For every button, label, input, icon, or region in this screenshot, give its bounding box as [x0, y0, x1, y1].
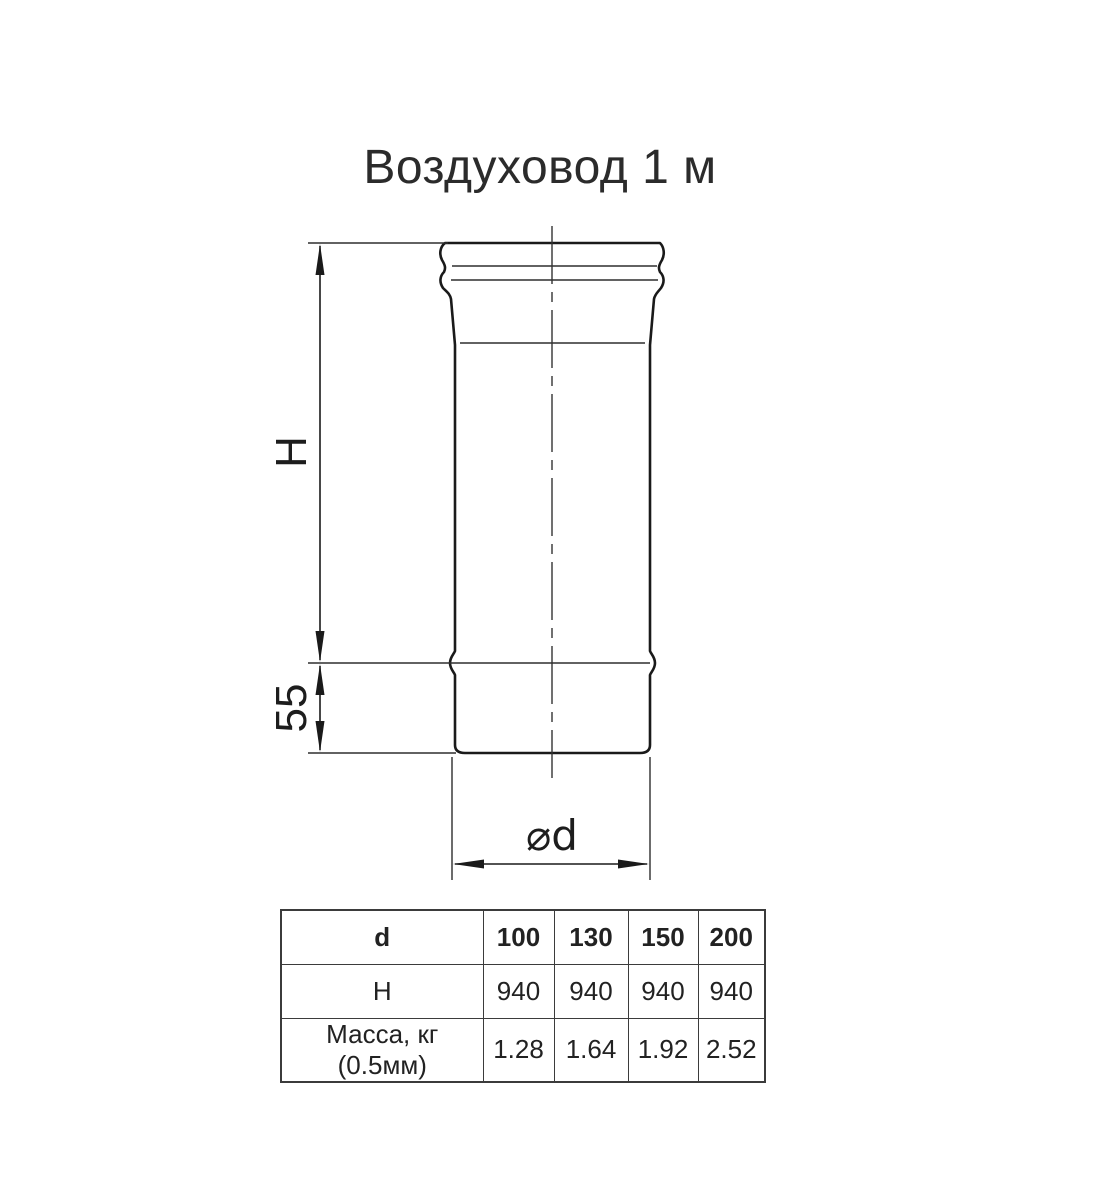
collar-dimension: 55 — [267, 664, 456, 753]
height-dimension-label: H — [267, 436, 316, 468]
arrow-left-icon — [453, 860, 484, 869]
table-row: Масса, кг (0.5мм) 1.28 1.64 1.92 2.52 — [281, 1018, 765, 1082]
collar-dimension-label: 55 — [267, 684, 316, 733]
table-cell: 940 — [628, 964, 698, 1018]
diameter-dimension-label: ⌀d — [526, 811, 578, 860]
spec-table: d 100 130 150 200 H 940 940 940 940 Масс… — [280, 909, 766, 1083]
table-cell: Масса, кг (0.5мм) — [281, 1018, 483, 1082]
arrow-down-icon — [316, 721, 325, 752]
table-cell: 940 — [698, 964, 765, 1018]
arrow-up-icon — [316, 244, 325, 275]
table-header-row: d 100 130 150 200 — [281, 910, 765, 964]
table-cell: 1.64 — [554, 1018, 628, 1082]
table-row: H 940 940 940 940 — [281, 964, 765, 1018]
page: Воздуховод 1 м H 55 — [0, 0, 1094, 1200]
table-cell: 2.52 — [698, 1018, 765, 1082]
diameter-dimension: ⌀d — [452, 757, 650, 880]
table-cell: H — [281, 964, 483, 1018]
table-cell: 940 — [483, 964, 554, 1018]
table-cell: 940 — [554, 964, 628, 1018]
table-header-cell: 200 — [698, 910, 765, 964]
table-cell: 1.28 — [483, 1018, 554, 1082]
table-header-cell: 130 — [554, 910, 628, 964]
arrow-down-icon — [316, 631, 325, 662]
table-header-cell: 100 — [483, 910, 554, 964]
table-cell: 1.92 — [628, 1018, 698, 1082]
arrow-up-icon — [316, 664, 325, 695]
table-header-cell: 150 — [628, 910, 698, 964]
table-header-cell: d — [281, 910, 483, 964]
arrow-right-icon — [618, 860, 649, 869]
